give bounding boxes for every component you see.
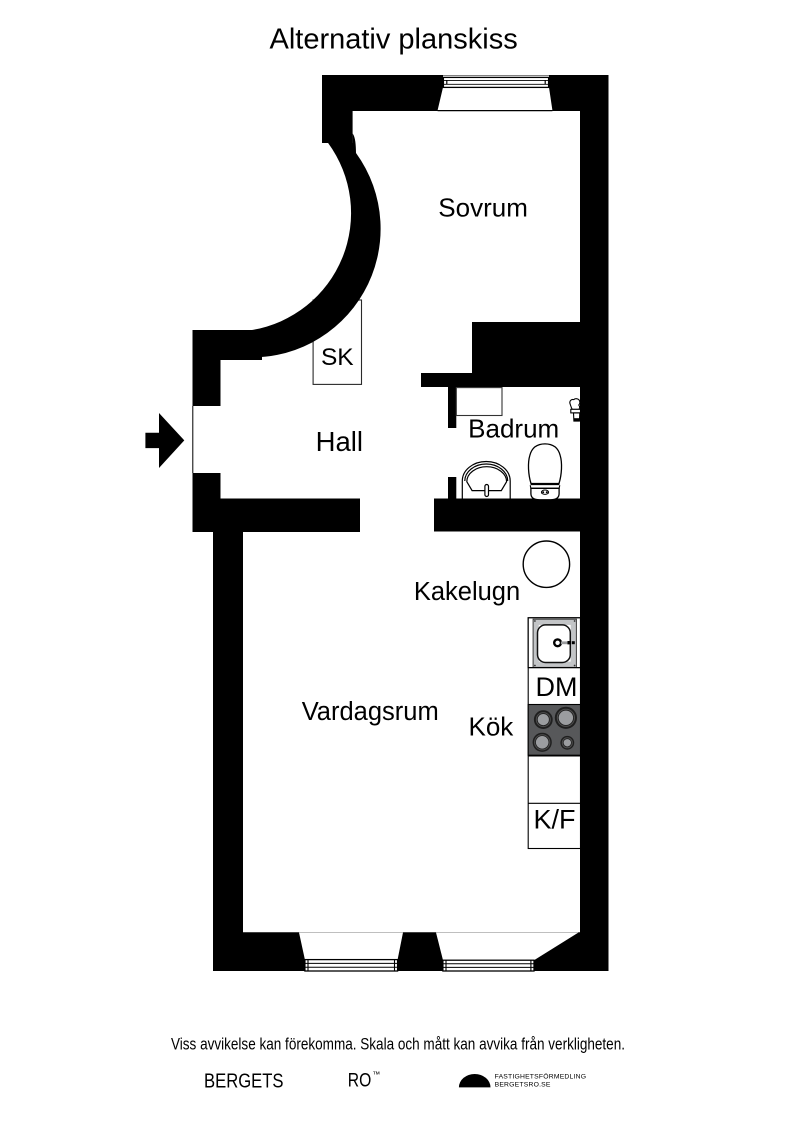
svg-text:Sovrum: Sovrum <box>438 192 528 222</box>
svg-text:Viss avvikelse kan förekomma.: Viss avvikelse kan förekomma. Skala och … <box>171 1035 625 1053</box>
svg-text:Badrum: Badrum <box>468 414 559 444</box>
svg-text:Vardagsrum: Vardagsrum <box>302 698 439 726</box>
svg-text:FASTIGHETSFÖRMEDLING: FASTIGHETSFÖRMEDLING <box>495 1072 587 1080</box>
svg-text:Kök: Kök <box>468 712 514 742</box>
svg-text:™: ™ <box>372 1070 380 1079</box>
svg-text:Alternativ planskiss: Alternativ planskiss <box>269 24 517 56</box>
svg-text:RO: RO <box>348 1070 372 1092</box>
svg-text:Kakelugn: Kakelugn <box>414 578 520 606</box>
svg-text:Hall: Hall <box>316 426 363 457</box>
svg-text:DM: DM <box>536 672 578 702</box>
svg-text:BERGETSRO.SE: BERGETSRO.SE <box>495 1082 551 1089</box>
svg-text:BERGETS: BERGETS <box>204 1070 284 1093</box>
svg-text:SK: SK <box>321 344 354 371</box>
svg-text:K/F: K/F <box>533 804 575 834</box>
